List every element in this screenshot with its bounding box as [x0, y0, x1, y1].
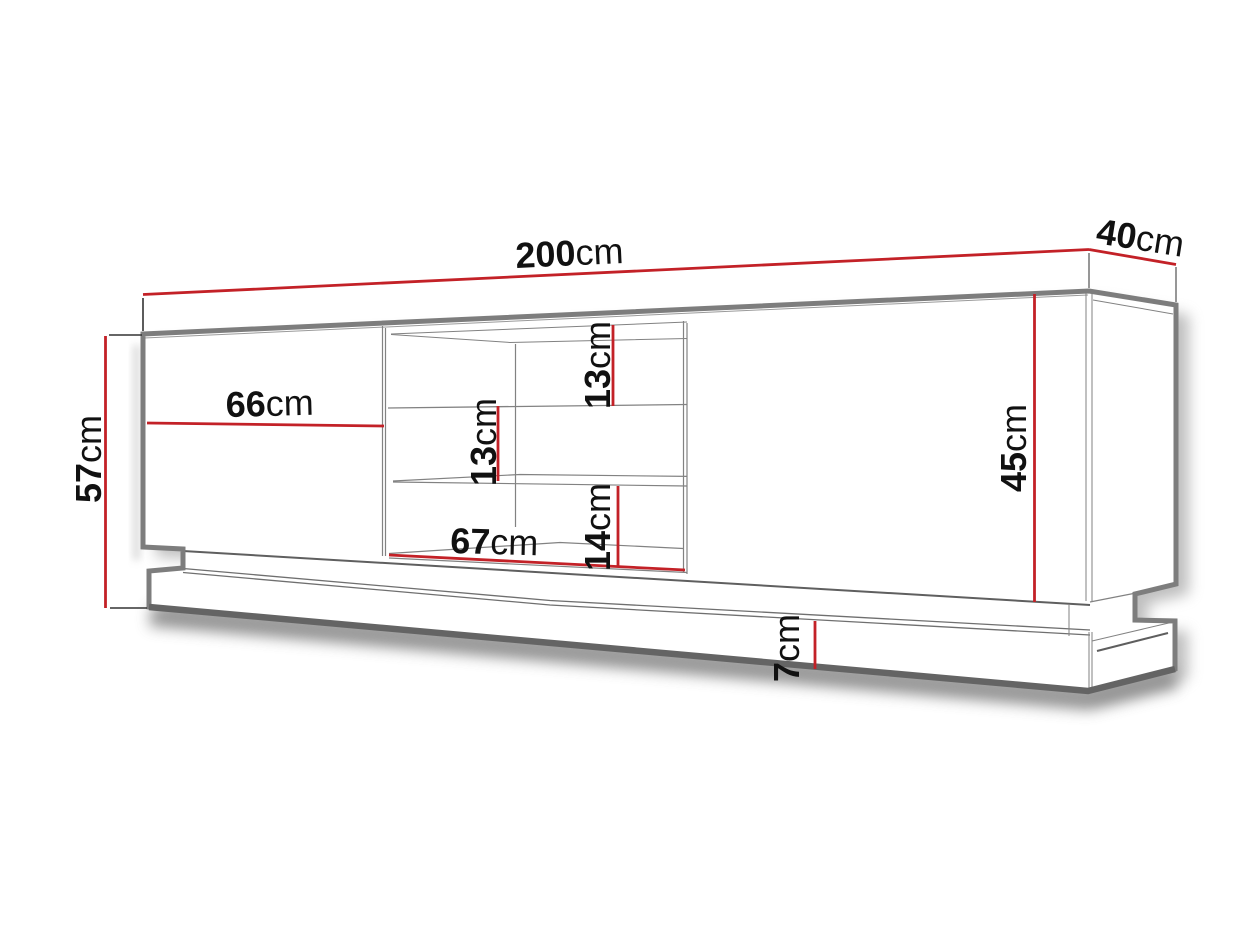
svg-text:14cm: 14cm	[577, 483, 618, 571]
svg-text:7cm: 7cm	[766, 614, 807, 682]
svg-text:13cm: 13cm	[577, 321, 618, 409]
svg-text:66cm: 66cm	[225, 382, 314, 425]
svg-text:67cm: 67cm	[450, 520, 539, 563]
svg-text:13cm: 13cm	[463, 398, 504, 486]
svg-text:57cm: 57cm	[68, 415, 109, 503]
svg-text:200cm: 200cm	[514, 230, 624, 276]
svg-text:45cm: 45cm	[993, 404, 1034, 492]
